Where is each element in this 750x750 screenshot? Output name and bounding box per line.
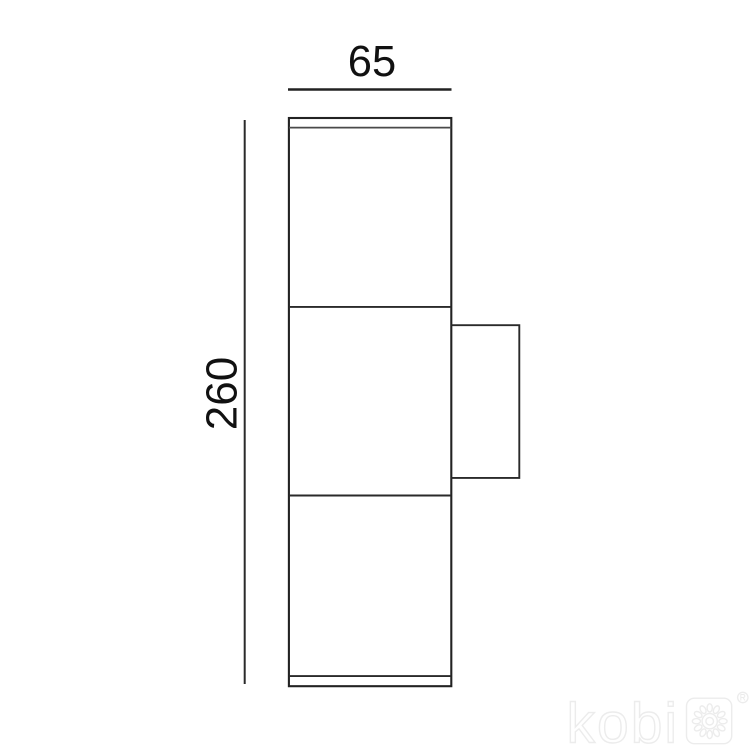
- svg-text:260: 260: [198, 357, 247, 430]
- svg-text:kobi: kobi: [567, 692, 680, 750]
- svg-text:65: 65: [348, 38, 396, 86]
